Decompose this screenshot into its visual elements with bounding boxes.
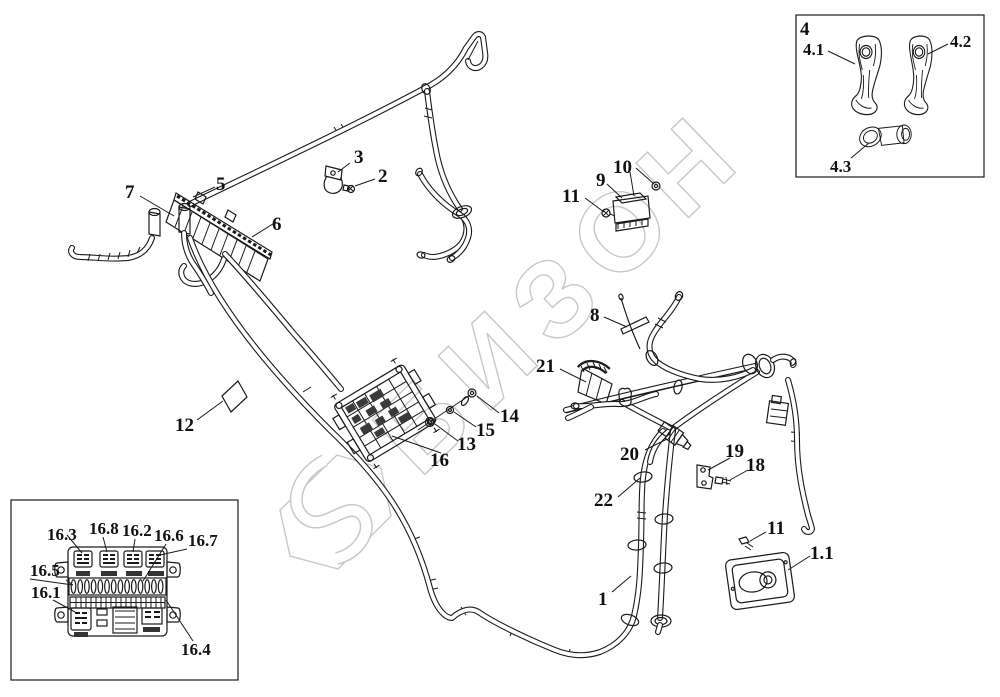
svg-text:14: 14 <box>500 406 520 427</box>
svg-text:3: 3 <box>354 147 364 168</box>
svg-text:16.8: 16.8 <box>89 519 119 538</box>
svg-text:16.6: 16.6 <box>154 526 184 545</box>
svg-text:16.1: 16.1 <box>31 583 61 602</box>
svg-text:4.1: 4.1 <box>803 40 824 59</box>
svg-text:21: 21 <box>536 356 555 377</box>
svg-text:8: 8 <box>590 305 600 326</box>
svg-text:4: 4 <box>800 19 810 40</box>
svg-text:22: 22 <box>594 490 613 511</box>
svg-text:16.7: 16.7 <box>188 531 218 550</box>
svg-text:15: 15 <box>476 420 495 441</box>
svg-text:18: 18 <box>746 455 765 476</box>
svg-text:2: 2 <box>378 166 388 187</box>
svg-text:16.4: 16.4 <box>181 640 211 659</box>
svg-text:12: 12 <box>175 415 194 436</box>
svg-text:11: 11 <box>767 518 785 539</box>
svg-text:16.2: 16.2 <box>122 521 152 540</box>
svg-text:16.5: 16.5 <box>30 561 60 580</box>
svg-text:10: 10 <box>613 157 632 178</box>
svg-text:5: 5 <box>216 174 226 195</box>
svg-text:7: 7 <box>125 182 135 203</box>
svg-text:16: 16 <box>430 450 449 471</box>
svg-text:4.3: 4.3 <box>830 157 851 176</box>
svg-text:13: 13 <box>457 434 476 455</box>
svg-text:9: 9 <box>596 170 606 191</box>
svg-text:6: 6 <box>272 214 282 235</box>
svg-text:4.2: 4.2 <box>950 32 971 51</box>
svg-text:1: 1 <box>598 589 608 610</box>
svg-text:1.1: 1.1 <box>810 543 834 564</box>
svg-text:11: 11 <box>562 186 580 207</box>
svg-text:20: 20 <box>620 444 639 465</box>
